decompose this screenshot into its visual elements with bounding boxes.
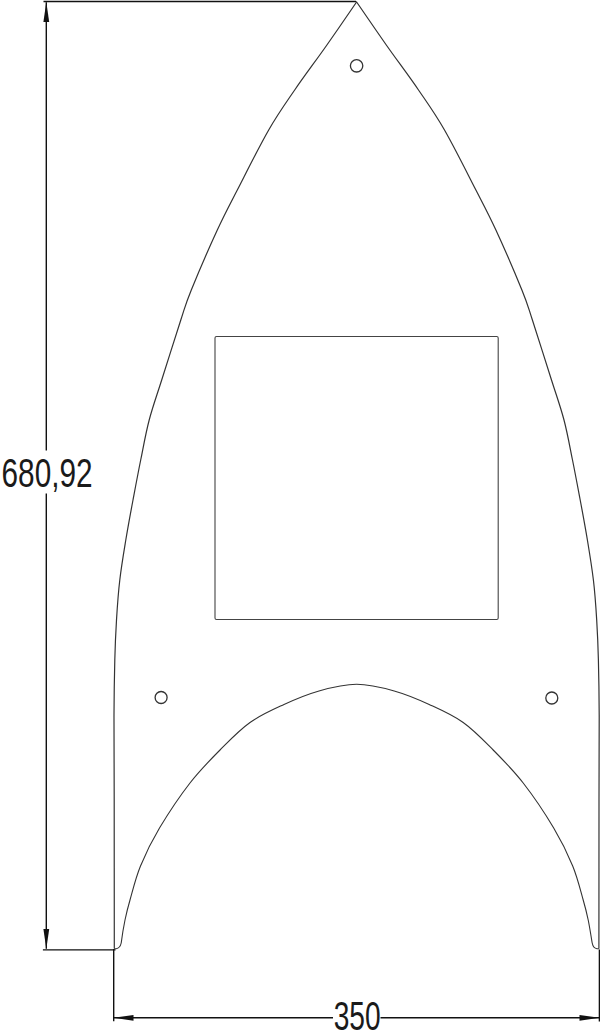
svg-text:680,92: 680,92 xyxy=(2,451,93,495)
svg-text:350: 350 xyxy=(334,994,381,1035)
